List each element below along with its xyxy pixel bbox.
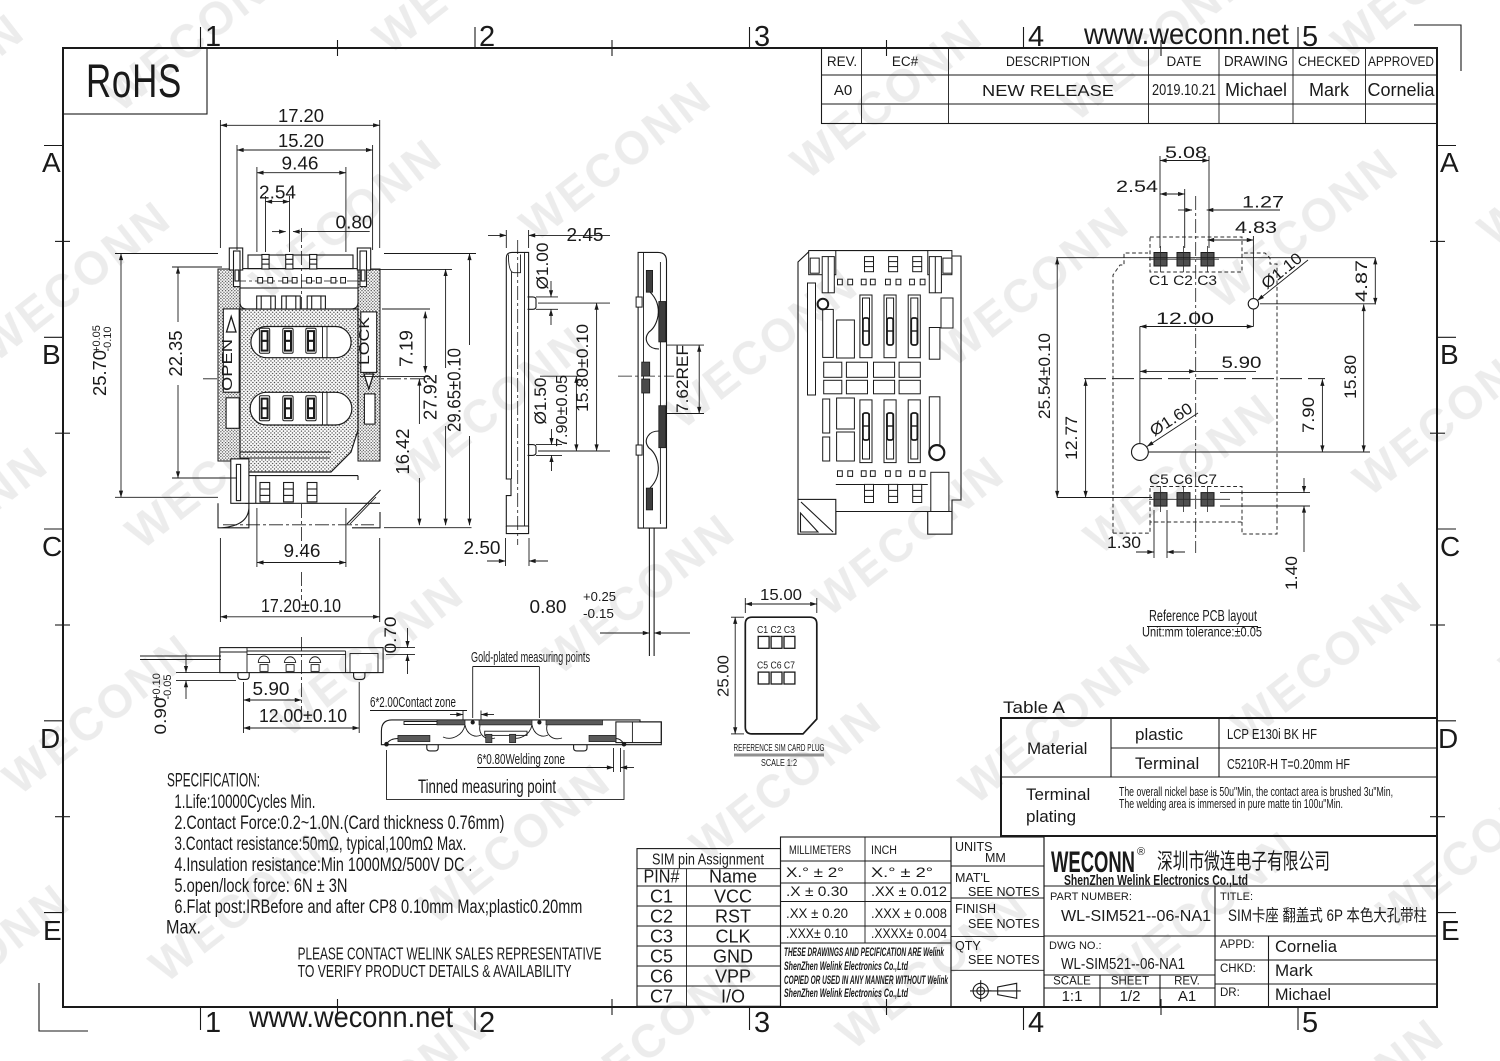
svg-text:OPEN: OPEN: [219, 339, 236, 391]
svg-text:9.46: 9.46: [282, 154, 319, 174]
svg-text:Ø1.00: Ø1.00: [533, 243, 552, 290]
svg-text:C2: C2: [650, 907, 673, 927]
svg-text:DRAWING: DRAWING: [1224, 54, 1288, 70]
svg-text:DATE: DATE: [1166, 54, 1201, 69]
svg-text:Max.: Max.: [166, 918, 201, 939]
svg-text:Cornelia: Cornelia: [1275, 937, 1338, 956]
svg-text:Material: Material: [1027, 739, 1087, 758]
svg-text:A0: A0: [834, 82, 852, 99]
svg-text:25.54±0.10: 25.54±0.10: [1036, 333, 1054, 419]
svg-text:C3: C3: [650, 927, 673, 947]
svg-text:SIM卡座 翻盖式 6P 本色大孔带柱: SIM卡座 翻盖式 6P 本色大孔带柱: [1228, 906, 1427, 925]
svg-text:4.87: 4.87: [1353, 260, 1371, 302]
svg-text:PIN#: PIN#: [644, 867, 680, 887]
svg-text:C: C: [42, 531, 62, 562]
svg-text:QTY: QTY: [955, 939, 981, 953]
svg-text:®: ®: [1137, 846, 1145, 858]
svg-text:15.80±0.10: 15.80±0.10: [573, 324, 592, 412]
svg-text:plastic: plastic: [1135, 725, 1184, 744]
svg-text:2.54: 2.54: [1116, 178, 1158, 196]
svg-text:12.00±0.10: 12.00±0.10: [259, 706, 347, 726]
svg-text:ShenZhen Welink Electronics Co: ShenZhen Welink Electronics Co.,Ltd: [784, 961, 909, 973]
svg-text:A1: A1: [1178, 988, 1196, 1005]
svg-text:9.46: 9.46: [284, 541, 321, 561]
svg-text:5.open/lock force: 6N ± 3N: 5.open/lock force: 6N ± 3N: [174, 876, 347, 897]
svg-text:1.Life:10000Cycles Min.: 1.Life:10000Cycles Min.: [174, 792, 315, 813]
svg-text:Terminal: Terminal: [1135, 754, 1199, 773]
svg-text:25.00: 25.00: [716, 655, 733, 697]
svg-text:Mark: Mark: [1275, 961, 1313, 980]
svg-text:APPROVED: APPROVED: [1368, 54, 1434, 69]
svg-text:REFERENCE SIM CARD PLUG: REFERENCE SIM CARD PLUG: [734, 743, 825, 754]
svg-text:COPIED OR USED IN ANY MANNER W: COPIED OR USED IN ANY MANNER WITHOUT Wel…: [784, 975, 948, 987]
svg-text:REV.: REV.: [827, 54, 857, 69]
svg-text:C5210R-H T=0.20mm HF: C5210R-H T=0.20mm HF: [1227, 756, 1350, 773]
svg-text:2: 2: [479, 21, 495, 53]
svg-text:2.Contact Force:0.2~1.0N.(Card: 2.Contact Force:0.2~1.0N.(Card thickness…: [174, 813, 504, 834]
svg-text:INCH: INCH: [871, 845, 897, 857]
svg-text:Table A: Table A: [1003, 698, 1066, 717]
svg-text:-0.10: -0.10: [102, 326, 114, 351]
svg-text:C7: C7: [650, 987, 673, 1007]
svg-text:MM: MM: [985, 851, 1006, 865]
svg-text:B: B: [1440, 339, 1459, 370]
svg-text:ShenZhen Welink Electronics Co: ShenZhen Welink Electronics Co.,Ltd: [784, 988, 909, 1000]
svg-text:.XXX± 0.10: .XXX± 0.10: [786, 926, 848, 941]
svg-text:Michael: Michael: [1225, 80, 1287, 100]
svg-text:TO VERIFY PRODUCT DETAILS & AV: TO VERIFY PRODUCT DETAILS & AVAILABILITY: [298, 961, 572, 981]
svg-text:7.62REF: 7.62REF: [673, 345, 692, 413]
svg-text:1.27: 1.27: [1242, 194, 1284, 212]
svg-text:-0.05: -0.05: [162, 674, 174, 699]
svg-text:6.Flat post:IRBefore and after: 6.Flat post:IRBefore and after CP8 0.10m…: [174, 897, 582, 918]
svg-text:Mark: Mark: [1309, 80, 1350, 100]
svg-text:Cornelia: Cornelia: [1368, 80, 1436, 100]
svg-text:THESE DRAWINGS AND PECIFICATIO: THESE DRAWINGS AND PECIFICATION ARE Weli…: [784, 947, 944, 959]
svg-text:C: C: [1440, 531, 1460, 562]
svg-text:4.Insulation resistance:Min 10: 4.Insulation resistance:Min 1000MΩ/500V …: [174, 855, 472, 876]
svg-text:C6: C6: [650, 967, 673, 987]
svg-text:C5 C6 C7: C5 C6 C7: [757, 660, 795, 672]
svg-text:0.90: 0.90: [151, 698, 170, 735]
svg-text:SCALE 1:2: SCALE 1:2: [761, 758, 797, 769]
svg-text:WL-SIM521--06-NA1: WL-SIM521--06-NA1: [1061, 956, 1185, 973]
svg-text:DR:: DR:: [1220, 987, 1240, 999]
svg-text:17.20: 17.20: [278, 106, 324, 126]
svg-text:C1: C1: [650, 887, 673, 907]
svg-text:22.35: 22.35: [166, 331, 186, 377]
svg-text:.XX ± 0.20: .XX ± 0.20: [786, 906, 848, 921]
svg-text:X.° ± 2°: X.° ± 2°: [786, 865, 844, 880]
svg-text:I/O: I/O: [721, 987, 745, 1007]
svg-text:GND: GND: [713, 947, 753, 967]
svg-text:Gold-plated measuring points: Gold-plated measuring points: [471, 650, 590, 666]
svg-text:SEE NOTES: SEE NOTES: [968, 885, 1040, 899]
svg-text:Reference PCB layout: Reference PCB layout: [1149, 608, 1257, 625]
svg-text:Unit:mm tolerance:±0.05: Unit:mm tolerance:±0.05: [1142, 625, 1262, 640]
svg-text:plating: plating: [1026, 807, 1076, 826]
svg-text:27.92: 27.92: [421, 374, 441, 420]
svg-text:15.20: 15.20: [278, 131, 324, 151]
svg-text:3: 3: [754, 1007, 770, 1039]
svg-text:Terminal: Terminal: [1026, 785, 1090, 804]
svg-text:SPECIFICATION:: SPECIFICATION:: [167, 771, 260, 792]
svg-text:C1 C2 C3: C1 C2 C3: [1149, 273, 1217, 288]
svg-text:Ø1.50: Ø1.50: [531, 378, 550, 425]
svg-text:.XXXX± 0.004: .XXXX± 0.004: [871, 926, 947, 941]
svg-text:5.08: 5.08: [1165, 144, 1207, 162]
svg-text:SCALE: SCALE: [1053, 976, 1091, 988]
svg-text:4.83: 4.83: [1235, 219, 1277, 237]
svg-text:16.42: 16.42: [393, 429, 413, 475]
svg-text:2019.10.21: 2019.10.21: [1152, 82, 1216, 99]
svg-text:SEE NOTES: SEE NOTES: [968, 953, 1040, 967]
svg-text:1:1: 1:1: [1062, 988, 1083, 1005]
svg-text:1: 1: [205, 1007, 221, 1039]
svg-text:X.° ± 2°: X.° ± 2°: [871, 865, 933, 880]
svg-text:6*2.00Contact zone: 6*2.00Contact zone: [370, 695, 456, 711]
svg-text:7.90±0.05: 7.90±0.05: [554, 375, 571, 447]
svg-text:.XXX ± 0.008: .XXX ± 0.008: [871, 906, 947, 921]
svg-text:4: 4: [1028, 1007, 1044, 1039]
svg-text:LOCK: LOCK: [356, 317, 373, 365]
svg-text:A: A: [1440, 147, 1459, 178]
svg-text:PART NUMBER:: PART NUMBER:: [1050, 891, 1132, 903]
svg-text:12.77: 12.77: [1063, 416, 1081, 460]
svg-text:25.70: 25.70: [90, 350, 110, 396]
svg-text:C5 C6 C7: C5 C6 C7: [1149, 472, 1217, 487]
svg-text:2.50: 2.50: [464, 538, 501, 558]
svg-text:APPD:: APPD:: [1220, 939, 1255, 951]
svg-text:17.20±0.10: 17.20±0.10: [261, 596, 341, 616]
svg-text:DESCRIPTION: DESCRIPTION: [1006, 54, 1090, 69]
svg-text:29.65±0.10: 29.65±0.10: [445, 348, 465, 432]
svg-text:E: E: [1441, 915, 1460, 946]
svg-text:-0.15: -0.15: [583, 606, 614, 621]
svg-text:1.30: 1.30: [1107, 534, 1141, 552]
svg-text:2.54: 2.54: [259, 183, 296, 203]
svg-text:Tinned measuring point: Tinned measuring point: [418, 777, 557, 798]
svg-text:TITLE:: TITLE:: [1220, 891, 1253, 903]
svg-text:15.80: 15.80: [1342, 355, 1360, 399]
svg-text:SHEET: SHEET: [1111, 976, 1149, 988]
svg-text:A: A: [42, 147, 61, 178]
svg-text:+0.25: +0.25: [583, 589, 616, 604]
svg-text:E: E: [43, 915, 62, 946]
svg-text:7.19: 7.19: [396, 330, 416, 367]
svg-text:2.45: 2.45: [567, 225, 604, 245]
svg-text:.XX ± 0.012: .XX ± 0.012: [871, 884, 947, 899]
svg-text:C1 C2 C3: C1 C2 C3: [757, 624, 795, 636]
svg-text:3: 3: [754, 21, 770, 53]
svg-text:1.40: 1.40: [1283, 556, 1301, 590]
svg-text:5.90: 5.90: [1222, 354, 1262, 372]
svg-text:Michael: Michael: [1275, 985, 1331, 1004]
svg-text:2: 2: [479, 1007, 495, 1039]
svg-text:WL-SIM521--06-NA1: WL-SIM521--06-NA1: [1061, 908, 1211, 925]
svg-text:1/2: 1/2: [1120, 988, 1141, 1005]
svg-text:CHKD:: CHKD:: [1220, 963, 1256, 975]
svg-text:LCP E130i BK HF: LCP E130i BK HF: [1227, 726, 1317, 743]
svg-text:VPP: VPP: [715, 967, 751, 987]
svg-text:NEW RELEASE: NEW RELEASE: [982, 83, 1114, 100]
svg-text:D: D: [1438, 723, 1458, 754]
svg-text:15.00: 15.00: [760, 587, 802, 604]
svg-text:12.00: 12.00: [1156, 310, 1214, 328]
svg-text:3.Contact resistance:50mΩ, typ: 3.Contact resistance:50mΩ, typical,100mΩ…: [174, 834, 466, 855]
svg-text:EC#: EC#: [892, 54, 919, 69]
svg-text:CHECKED: CHECKED: [1298, 54, 1360, 69]
svg-text:深圳市微连电子有限公司: 深圳市微连电子有限公司: [1157, 849, 1330, 874]
svg-text:DWG NO.:: DWG NO.:: [1049, 940, 1102, 952]
svg-text:ShenZhen Welink Electronics Co: ShenZhen Welink Electronics Co.,Ltd: [1064, 872, 1248, 889]
svg-text:B: B: [42, 339, 61, 370]
svg-text:.X ± 0.30: .X ± 0.30: [786, 884, 848, 899]
svg-text:SEE NOTES: SEE NOTES: [968, 917, 1040, 931]
svg-text:www.weconn.net: www.weconn.net: [248, 1001, 454, 1034]
svg-text:RST: RST: [715, 907, 751, 927]
svg-text:VCC: VCC: [714, 887, 752, 907]
svg-text:D: D: [40, 723, 60, 754]
svg-text:REV.: REV.: [1174, 976, 1200, 988]
svg-text:7.90: 7.90: [1300, 397, 1318, 433]
svg-text:The welding area is immersed i: The welding area is immersed in pure mat…: [1119, 797, 1343, 811]
svg-text:MILLIMETERS: MILLIMETERS: [789, 845, 851, 857]
svg-text:MAT'L: MAT'L: [955, 871, 990, 885]
svg-text:RoHS: RoHS: [86, 54, 182, 107]
svg-text:Name: Name: [709, 867, 757, 887]
svg-text:0.70: 0.70: [381, 617, 400, 654]
svg-text:0.80: 0.80: [336, 213, 373, 233]
svg-text:CLK: CLK: [715, 927, 750, 947]
svg-text:6*0.80Welding zone: 6*0.80Welding zone: [477, 752, 565, 768]
svg-text:www.weconn.net: www.weconn.net: [1083, 18, 1290, 51]
svg-text:5: 5: [1302, 1007, 1318, 1039]
svg-text:FINISH: FINISH: [955, 902, 996, 916]
svg-text:5.90: 5.90: [253, 679, 290, 699]
svg-text:C5: C5: [650, 947, 673, 967]
svg-text:0.80: 0.80: [530, 597, 567, 617]
